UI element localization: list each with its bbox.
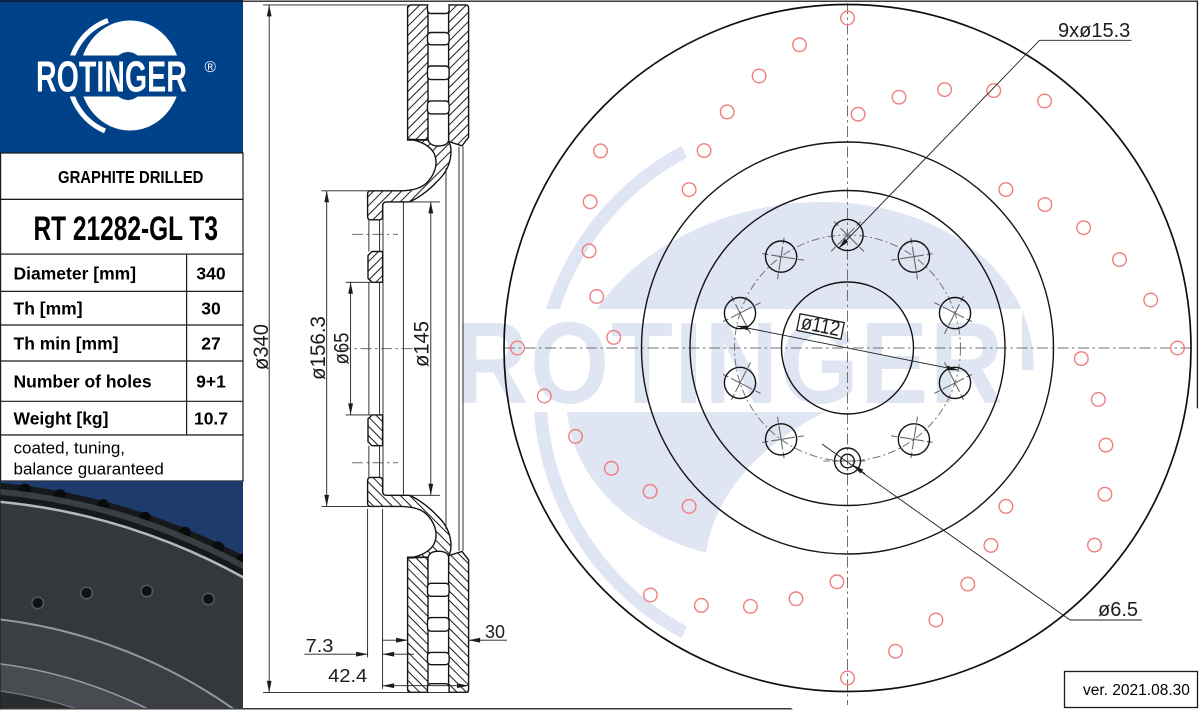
svg-text:balance guaranteed: balance guaranteed	[14, 460, 164, 479]
svg-text:Diameter [mm]: Diameter [mm]	[14, 264, 137, 284]
svg-text:340: 340	[196, 264, 225, 284]
svg-text:ø156.3: ø156.3	[307, 316, 330, 380]
svg-text:30: 30	[201, 299, 221, 319]
svg-text:ROTINGER: ROTINGER	[36, 51, 187, 101]
svg-text:coated, tuning,: coated, tuning,	[14, 439, 126, 458]
svg-text:10.7: 10.7	[194, 409, 228, 429]
svg-text:Weight [kg]: Weight [kg]	[14, 409, 109, 429]
svg-text:7.3: 7.3	[306, 636, 334, 656]
svg-text:9+1: 9+1	[196, 372, 226, 392]
svg-text:42.4: 42.4	[328, 666, 367, 686]
svg-text:ø340: ø340	[250, 324, 273, 370]
svg-text:9xø15.3: 9xø15.3	[1058, 20, 1130, 42]
svg-text:Th [mm]: Th [mm]	[14, 299, 83, 319]
svg-text:RT 21282-GL T3: RT 21282-GL T3	[34, 210, 218, 248]
svg-text:ø145: ø145	[411, 321, 434, 367]
svg-text:ø6.5: ø6.5	[1098, 599, 1138, 621]
svg-text:Th min [mm]: Th min [mm]	[14, 334, 119, 354]
svg-text:®: ®	[205, 59, 217, 76]
svg-text:30: 30	[485, 622, 505, 642]
svg-text:27: 27	[201, 334, 220, 354]
svg-text:ver. 2021.08.30: ver. 2021.08.30	[1083, 682, 1190, 699]
svg-text:ø65: ø65	[331, 333, 354, 365]
svg-text:Number of holes: Number of holes	[14, 372, 152, 392]
svg-text:GRAPHITE DRILLED: GRAPHITE DRILLED	[58, 168, 204, 187]
